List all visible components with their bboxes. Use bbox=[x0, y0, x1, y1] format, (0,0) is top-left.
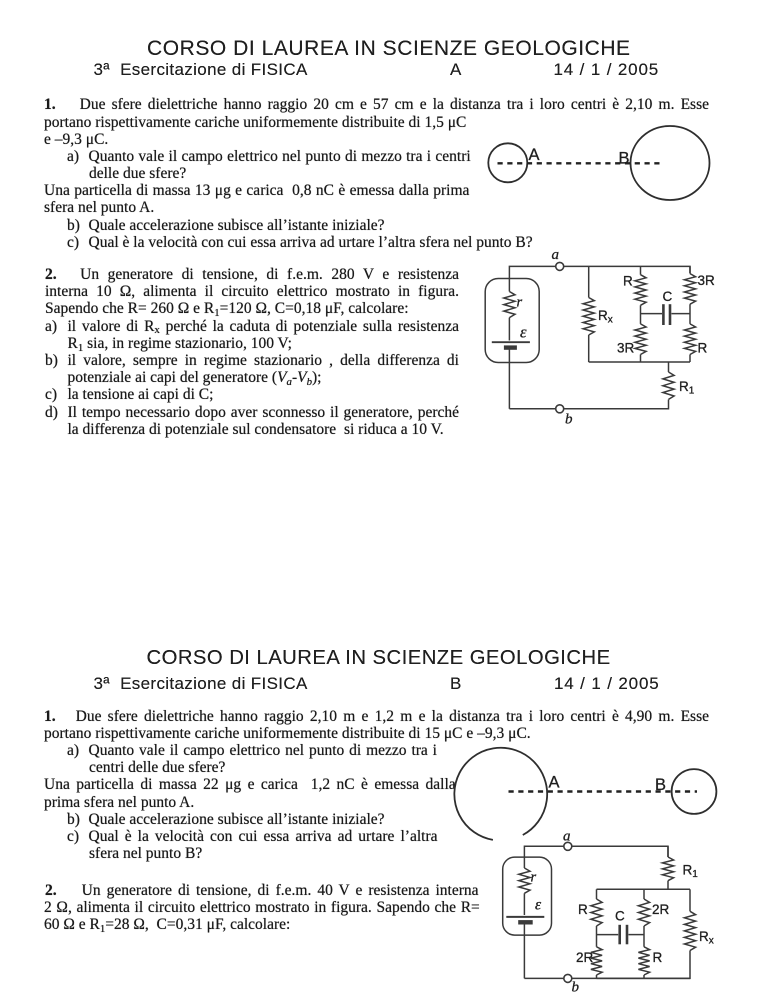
svg-text:a: a bbox=[563, 829, 571, 845]
svg-text:B: B bbox=[655, 776, 666, 794]
svg-text:ε: ε bbox=[520, 323, 527, 342]
svg-text:R: R bbox=[623, 274, 633, 289]
svg-text:r: r bbox=[531, 870, 537, 886]
svg-text:A: A bbox=[549, 774, 560, 792]
svg-text:B: B bbox=[619, 150, 630, 168]
svg-text:2R: 2R bbox=[652, 902, 670, 917]
svg-text:Rx: Rx bbox=[598, 308, 613, 326]
svg-text:C: C bbox=[663, 289, 673, 304]
svg-text:a: a bbox=[552, 247, 560, 263]
svg-text:R: R bbox=[653, 950, 663, 965]
svg-text:r: r bbox=[517, 295, 523, 311]
svg-text:Rx: Rx bbox=[699, 929, 714, 947]
svg-text:R1: R1 bbox=[683, 863, 699, 881]
svg-text:R: R bbox=[578, 902, 588, 917]
svg-text:A: A bbox=[529, 146, 540, 164]
svg-text:3R: 3R bbox=[617, 341, 635, 356]
svg-text:R1: R1 bbox=[679, 379, 695, 397]
svg-text:C: C bbox=[615, 909, 625, 924]
svg-text:R: R bbox=[698, 341, 708, 356]
svg-text:2R: 2R bbox=[576, 950, 594, 965]
svg-text:3R: 3R bbox=[698, 273, 716, 288]
svg-text:b: b bbox=[572, 980, 580, 994]
svg-text:ε: ε bbox=[535, 897, 542, 914]
svg-text:b: b bbox=[565, 412, 573, 428]
